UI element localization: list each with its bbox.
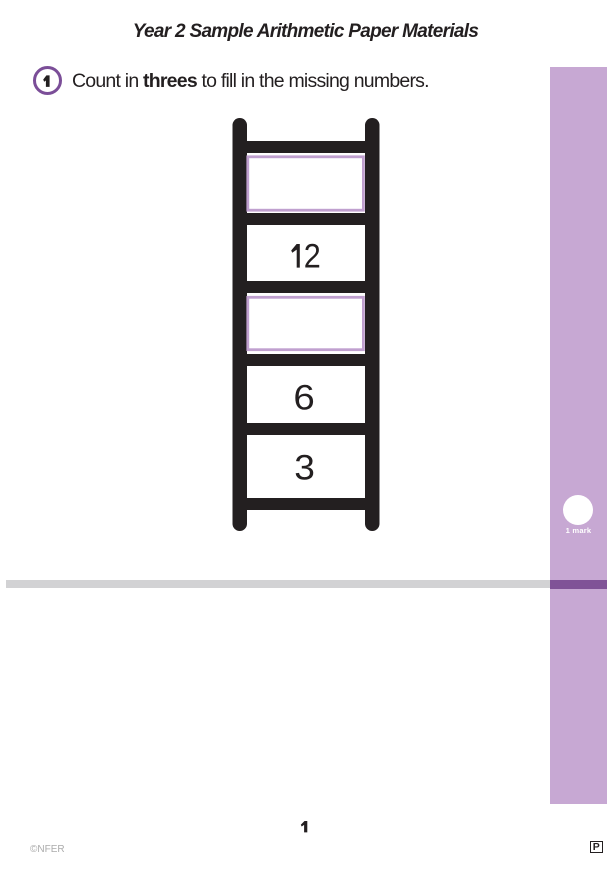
svg-text:3: 3 — [294, 447, 315, 487]
svg-text:2: 2 — [304, 237, 321, 275]
svg-text:6: 6 — [293, 378, 314, 417]
